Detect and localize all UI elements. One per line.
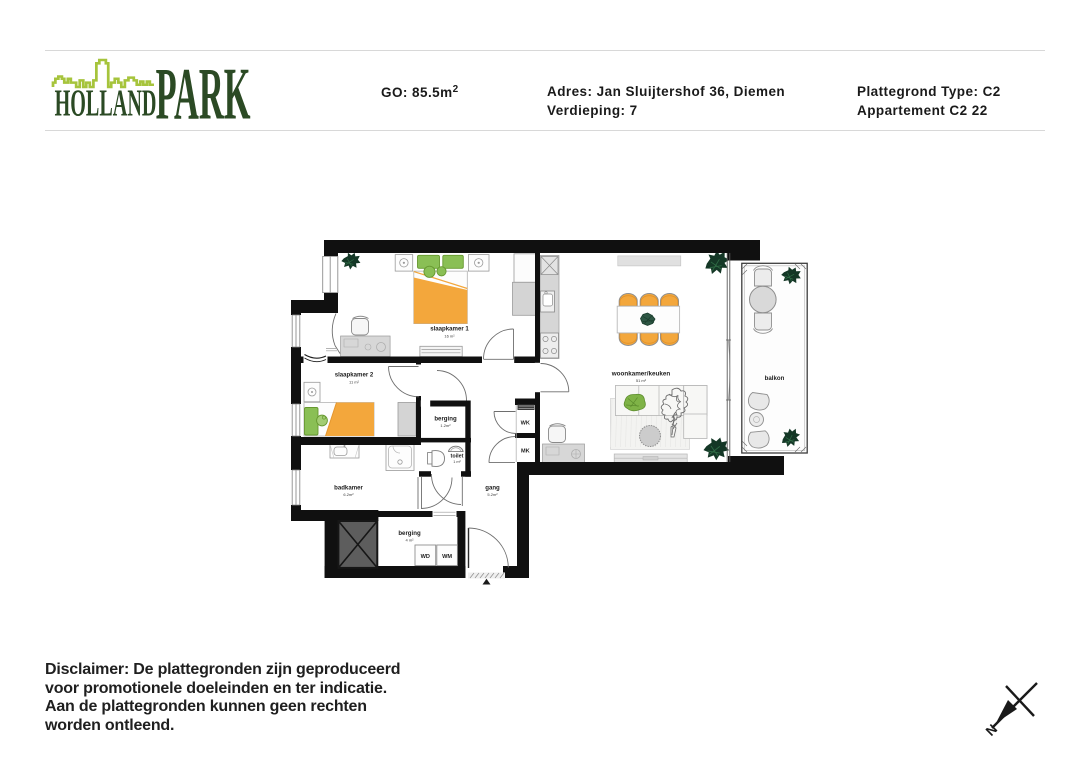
svg-text:slaapkamer 2: slaapkamer 2 [335,372,374,379]
svg-text:PARK: PARK [156,55,251,125]
svg-text:slaapkamer 1: slaapkamer 1 [430,326,469,333]
svg-text:HOLLAND: HOLLAND [55,82,157,124]
svg-text:11 m²: 11 m² [349,380,360,385]
svg-text:gang: gang [485,485,500,492]
svg-text:woonkamer/keuken: woonkamer/keuken [611,371,671,378]
svg-text:N: N [983,721,1001,739]
svg-text:WM: WM [442,554,452,560]
svg-text:balkon: balkon [765,375,785,382]
svg-text:berging: berging [398,530,421,537]
svg-text:MK: MK [521,449,530,455]
svg-text:4 m²: 4 m² [406,538,415,543]
svg-text:1 m²: 1 m² [453,460,461,464]
svg-text:16 m²: 16 m² [444,334,455,339]
svg-text:badkamer: badkamer [334,485,363,492]
svg-text:51 m²: 51 m² [636,378,647,383]
svg-text:toilet: toilet [451,454,464,460]
svg-text:WD: WD [421,554,430,560]
svg-text:1.2m²: 1.2m² [440,423,451,428]
svg-text:6.2m²: 6.2m² [343,492,354,497]
svg-text:berging: berging [434,416,457,423]
svg-text:WK: WK [521,421,530,427]
svg-text:5.2m²: 5.2m² [487,492,498,497]
